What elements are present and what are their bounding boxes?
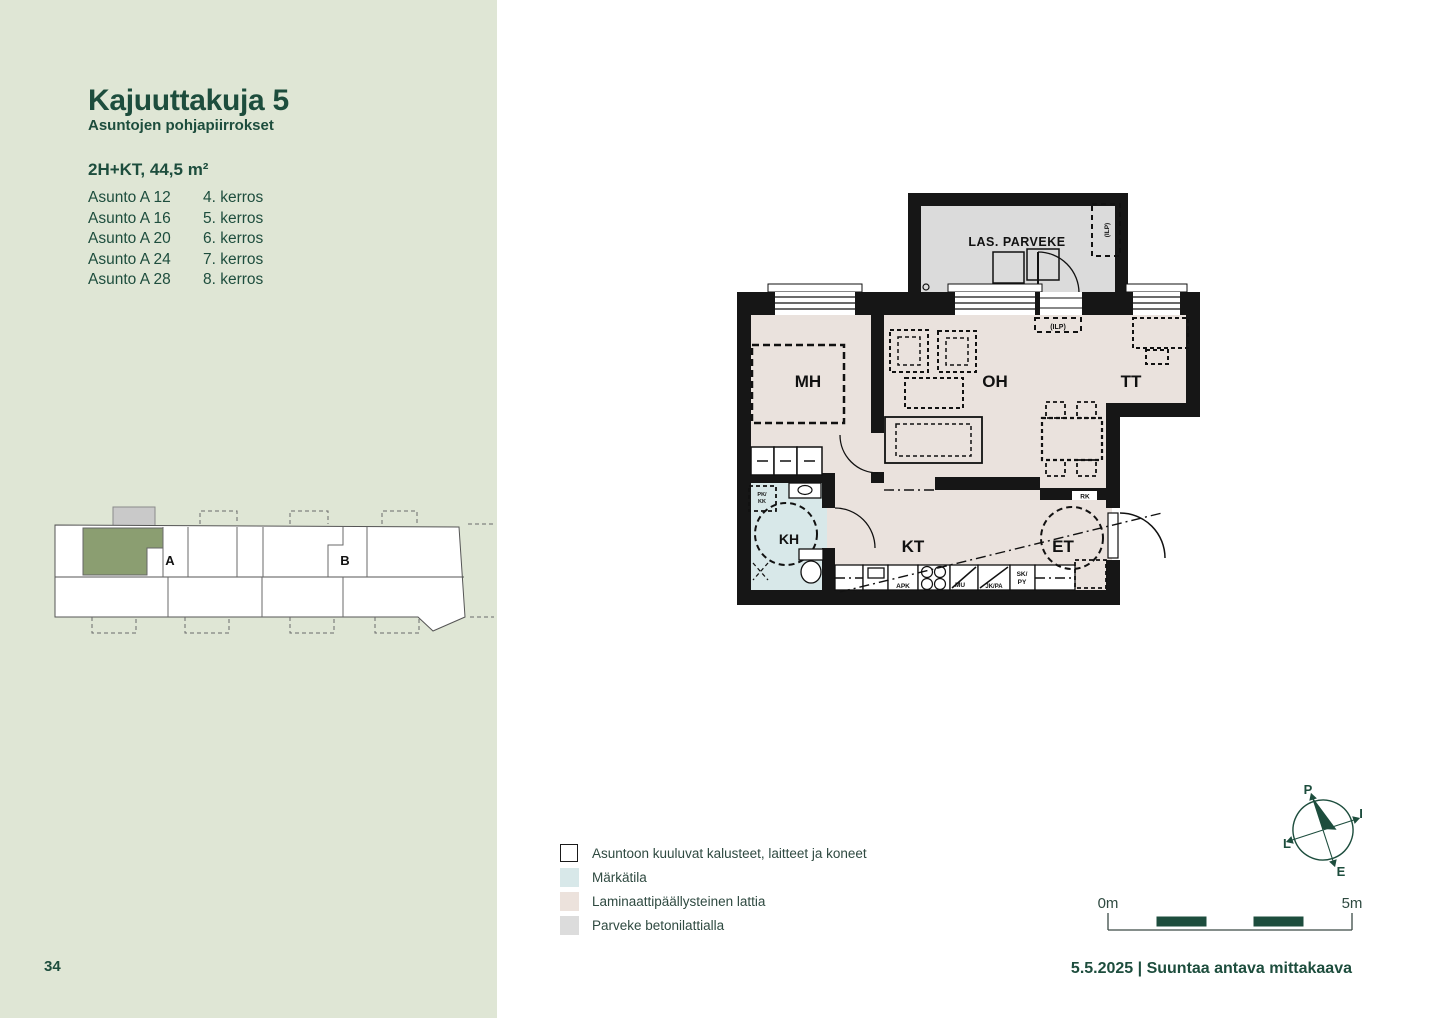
page-title: Kajuuttakuja 5 [88, 84, 289, 118]
compass-south-label: E [1337, 864, 1346, 879]
legend: Asuntoon kuuluvat kalusteet, laitteet ja… [560, 841, 867, 937]
date-and-disclaimer: 5.5.2025 | Suuntaa antava mittakaava [1071, 960, 1352, 978]
apartment-floor: 8. kerros [203, 270, 263, 291]
north-needle [1312, 793, 1336, 834]
legend-swatch-laminate [560, 892, 579, 911]
ilp-balcony-label: (ILP) [1104, 223, 1111, 237]
apartment-row: Asunto A 12 4. kerros [88, 188, 263, 209]
rk-label: RK [1080, 494, 1090, 501]
apartment-list: Asunto A 12 4. kerros Asunto A 16 5. ker… [88, 188, 263, 291]
apartment-unit: Asunto A 16 [88, 209, 203, 230]
scale-start-label: 0m [1098, 895, 1119, 912]
scale-bar: 0m 5m [1090, 888, 1370, 938]
keyplan-balcony-gray [113, 507, 155, 526]
legend-label: Asuntoon kuuluvat kalusteet, laitteet ja… [592, 846, 867, 861]
compass-west-label: L [1283, 836, 1291, 851]
apartment-row: Asunto A 28 8. kerros [88, 270, 263, 291]
apartment-unit: Asunto A 20 [88, 229, 203, 250]
legend-label: Parveke betonilattialla [592, 918, 724, 933]
legend-label: Märkätila [592, 870, 647, 885]
legend-swatch-fixtures [560, 844, 578, 862]
legend-label: Laminaattipäällysteinen lattia [592, 894, 765, 909]
balcony-room-label: LAS. PARVEKE [968, 235, 1065, 249]
keyplan-stair-a-label: A [165, 553, 175, 568]
apartment-unit: Asunto A 28 [88, 270, 203, 291]
legend-swatch-wet-room [560, 868, 579, 887]
keyplan-stair-b-label: B [340, 553, 349, 568]
legend-row: Parveke betonilattialla [560, 913, 867, 937]
apartment-floor: 7. kerros [203, 250, 263, 271]
pk-label: PK/ [757, 492, 767, 498]
legend-swatch-balcony [560, 916, 579, 935]
window-mh [768, 284, 862, 315]
sink [868, 568, 884, 578]
apartment-floor: 4. kerros [203, 188, 263, 209]
entry-door-leaf [1108, 513, 1118, 558]
py-label: PY [1018, 579, 1027, 586]
apk-label: APK [896, 583, 910, 590]
kk-label: KK [758, 499, 766, 505]
jkpa-label: JK/PA [985, 584, 1003, 590]
apartment-floor: 6. kerros [203, 229, 263, 250]
room-label-kt: KT [902, 537, 925, 556]
wardrobes [751, 447, 822, 475]
window-tt [1126, 284, 1187, 315]
page-number: 34 [44, 958, 61, 975]
window-oh [948, 284, 1042, 315]
room-label-mh: MH [795, 372, 821, 391]
compass-east-label: I [1359, 806, 1363, 821]
entry-door-arc [1120, 513, 1165, 558]
compass-rose-icon: P I E L [1275, 778, 1375, 883]
ilp-indoor-label: (ILP) [1050, 324, 1066, 331]
legend-row: Asuntoon kuuluvat kalusteet, laitteet ja… [560, 841, 867, 865]
apartment-unit: Asunto A 12 [88, 188, 203, 209]
apartment-row: Asunto A 16 5. kerros [88, 209, 263, 230]
building-key-plan: A B [40, 498, 500, 650]
wc-bowl [801, 561, 821, 583]
room-label-oh: OH [982, 372, 1008, 391]
compass-north-label: P [1304, 782, 1313, 797]
scale-segment [1157, 917, 1206, 926]
page-subtitle: Asuntojen pohjapiirrokset [88, 117, 274, 134]
room-label-tt: TT [1121, 372, 1142, 391]
apartment-floor: 5. kerros [203, 209, 263, 230]
legend-row: Laminaattipäällysteinen lattia [560, 889, 867, 913]
room-label-kh: KH [779, 531, 799, 547]
floor-plan: (ILP) LAS. PARVEKE [710, 180, 1220, 620]
scale-segment [1254, 917, 1303, 926]
mu-label: MU [955, 582, 965, 589]
apartment-row: Asunto A 20 6. kerros [88, 229, 263, 250]
apartment-unit: Asunto A 24 [88, 250, 203, 271]
balcony-door-opening [1040, 292, 1082, 315]
apartment-row: Asunto A 24 7. kerros [88, 250, 263, 271]
sk-label: SK/ [1017, 571, 1028, 578]
apartment-type: 2H+KT, 44,5 m² [88, 160, 208, 180]
scale-end-label: 5m [1342, 895, 1363, 912]
legend-row: Märkätila [560, 865, 867, 889]
wc-tank [799, 549, 823, 560]
balcony-floor [921, 206, 1115, 292]
room-label-et: ET [1052, 537, 1074, 556]
